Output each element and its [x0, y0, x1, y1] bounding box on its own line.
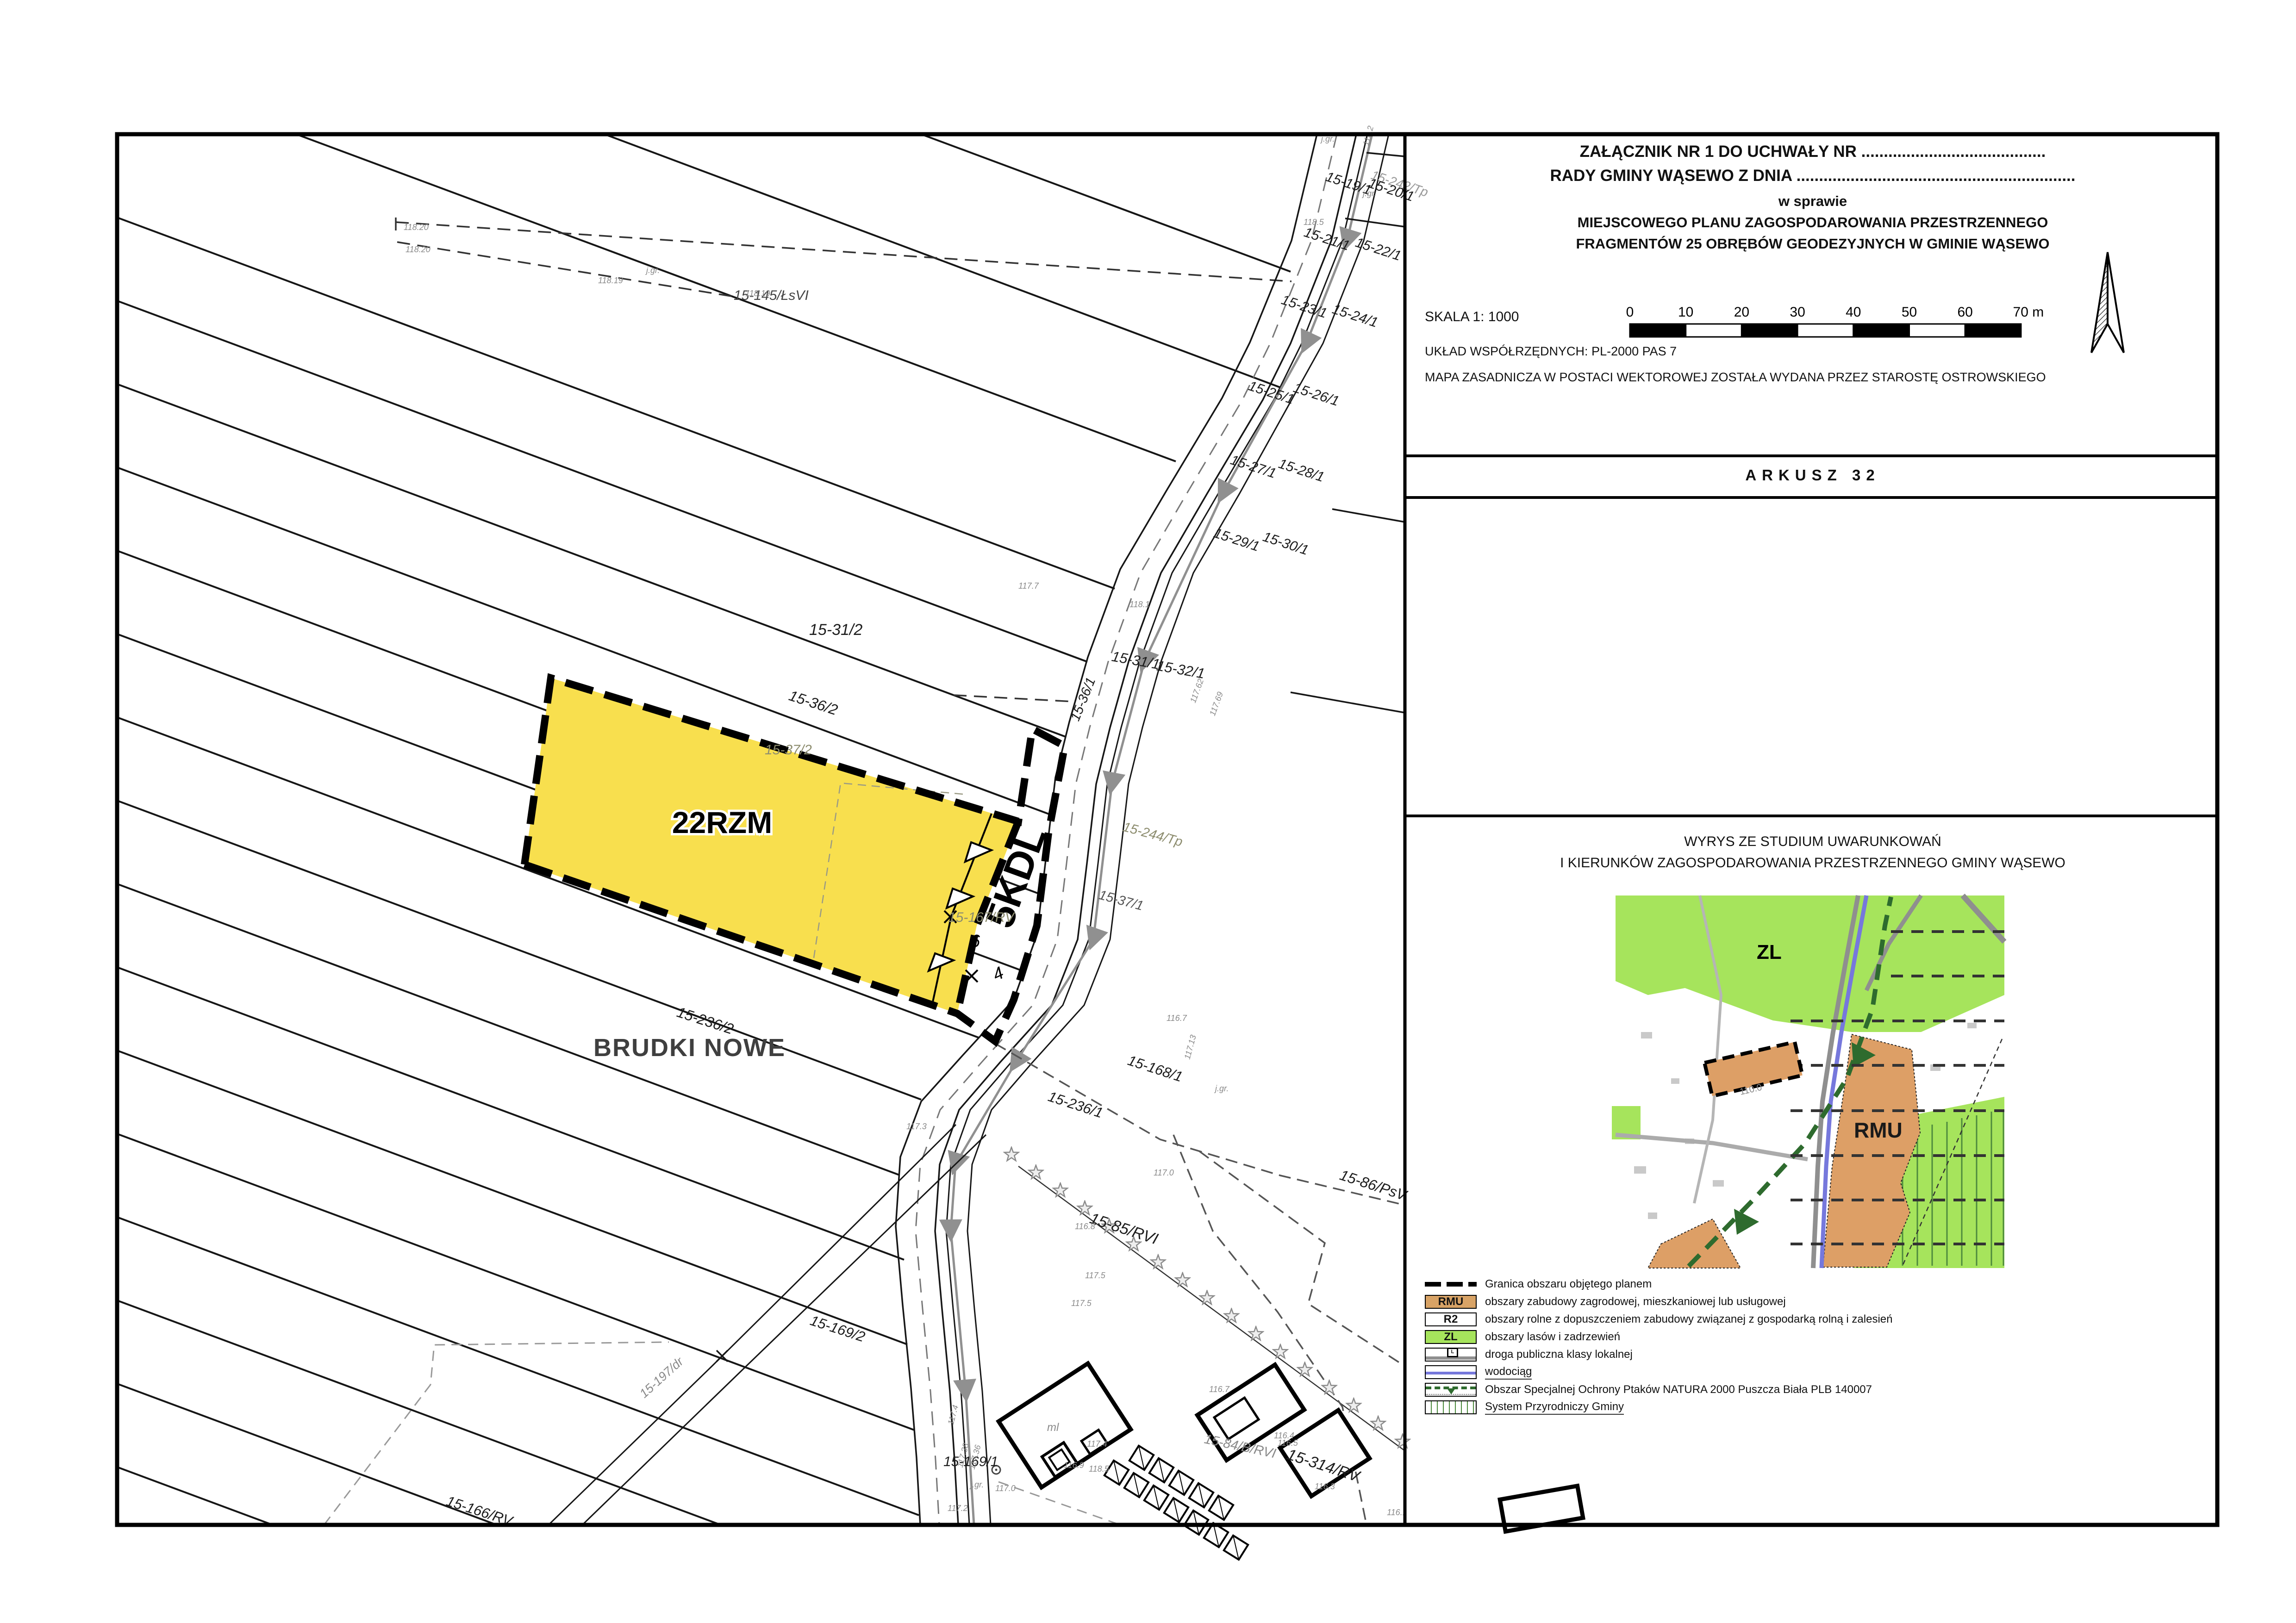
map-label: 15-30/1 [1261, 529, 1310, 558]
legend-row-wodociag: wodociąg [1425, 1364, 2193, 1380]
map-label: 15-167/RV [948, 910, 1016, 925]
map-label: 15-197/dr [637, 1354, 686, 1400]
legend-label: obszary zabudowy zagrodowej, mieszkaniow… [1485, 1295, 1786, 1308]
map-label: 15-244/Tp [1121, 820, 1184, 850]
outbuilding [1149, 1458, 1173, 1482]
map-label: 116.7 [1167, 1014, 1187, 1023]
legend-label: Granica obszaru objętego planem [1485, 1278, 1652, 1291]
legend-label: System Przyrodniczy Gminy [1485, 1400, 1624, 1415]
zone-22rzm [524, 678, 1065, 1041]
legend-row-rmu: RMU obszary zabudowy zagrodowej, mieszka… [1425, 1294, 2193, 1310]
natura2000-swatch [1425, 1383, 1477, 1397]
scale-bar: 010203040506070 m [1626, 305, 2044, 337]
map-label: 118.19 [745, 289, 770, 298]
map-label: 15-26/1 [1291, 380, 1341, 409]
map-label: 15-169/2 [808, 1312, 867, 1345]
outbuilding [1169, 1471, 1193, 1495]
road-swatch: L [1425, 1348, 1477, 1362]
map-label: 4 [990, 963, 1007, 985]
map-label: 117.5 [1071, 1299, 1092, 1308]
map-label: 15-37/2 [765, 742, 812, 758]
title-block: ZAŁĄCZNIK NR 1 DO UCHWAŁY NR ...........… [1407, 140, 2218, 255]
tree-symbol [1029, 1165, 1043, 1179]
map-label: j.gr. [969, 1480, 984, 1489]
legend-row-system: System Przyrodniczy Gminy [1425, 1399, 2193, 1415]
title-line-wsprawie: w sprawie [1407, 191, 2218, 212]
map-label: 15-168/1 [1126, 1052, 1185, 1085]
rmu-swatch: RMU [1425, 1295, 1477, 1309]
legend-row-natura: Obszar Specjalnej Ochrony Ptaków NATURA … [1425, 1382, 2193, 1398]
legend-row-droga: L droga publiczna klasy lokalnej [1425, 1347, 2193, 1362]
cadastral-map: 22RZM 5KDL BRUDKI NOWE 15-145/ŁsVI15-31/… [117, 125, 1583, 1560]
scale-text: SKALA 1: 1000 [1425, 309, 1519, 325]
scale-bar-label: 20 [1734, 305, 1749, 320]
title-line-zalacznik: ZAŁĄCZNIK NR 1 DO UCHWAŁY NR ...........… [1407, 140, 2218, 164]
map-label: 118.1 [1129, 600, 1150, 609]
map-label: 118.20 [406, 245, 430, 254]
map-label: 118.20 [404, 223, 429, 232]
map-label: 117.3 [906, 1122, 927, 1131]
map-label: 15-22/1 [1354, 235, 1403, 264]
map-label: 15-24/1 [1330, 301, 1380, 330]
map-label: 15-31/1 [1111, 648, 1161, 672]
map-label: 15-32/1 [1155, 657, 1206, 682]
road-class-icon: L [1447, 1348, 1458, 1357]
outbuilding [1184, 1511, 1208, 1535]
outbuilding [1189, 1483, 1213, 1507]
outbuilding [1164, 1498, 1188, 1522]
scale-bar-label: 0 [1626, 305, 1634, 320]
zone-label-22rzm: 22RZM [672, 805, 772, 839]
map-label: 117.2 [948, 1504, 968, 1513]
outbuilding [1129, 1446, 1154, 1470]
plan-boundary-symbol [1425, 1277, 1477, 1291]
town-label: BRUDKI NOWE [593, 1034, 786, 1062]
map-label: 6 [970, 932, 980, 951]
map-label: 15-85/RVI [1088, 1209, 1160, 1248]
map-label: 15-21/1 [1302, 224, 1352, 254]
map-label: 118.5 [1304, 218, 1324, 227]
tree-symbol [1151, 1255, 1165, 1269]
map-label: 15-236/1 [1046, 1088, 1105, 1121]
scale-bar-label: 50 [1902, 305, 1917, 320]
map-label: 116.9 [1064, 1461, 1084, 1470]
scale-bar-label: 30 [1790, 305, 1805, 320]
map-label: 15-236/2 [675, 1003, 736, 1037]
map-label: 116.5 [1278, 1438, 1298, 1448]
legend-row-r2: R2 obszary rolne z dopuszczeniem zabudow… [1425, 1312, 2193, 1327]
right-panel-graphics: 010203040506070 m [1612, 252, 2124, 1268]
sheet-number: ARKUSZ 32 [1407, 466, 2218, 484]
map-label: 118.5 [1089, 1464, 1110, 1474]
legend-label: Obszar Specjalnej Ochrony Ptaków NATURA … [1485, 1383, 1872, 1396]
legend-row-zl: ZL obszary lasów i zadrzewień [1425, 1329, 2193, 1345]
inset-rmu-label: RMU [1854, 1118, 1903, 1142]
scale-bar-label: 40 [1846, 305, 1861, 320]
map-label: 116.3 [1315, 1482, 1335, 1491]
legend-row-granica: Granica obszaru objętego planem [1425, 1276, 2193, 1292]
map-label: 117.4 [946, 1404, 961, 1426]
planning-map-sheet: { "title_block": { "line1": "ZAŁĄCZNIK N… [0, 0, 2296, 1623]
studium-heading-line1: WYRYS ZE STUDIUM UWARUNKOWAŃ [1407, 831, 2218, 852]
map-label: 117.0 [1154, 1168, 1174, 1177]
outbuilding [1224, 1536, 1248, 1560]
basemap-note: MAPA ZASADNICZA W POSTACI WEKTOROWEJ ZOS… [1425, 369, 2184, 386]
r2-swatch: R2 [1425, 1312, 1477, 1326]
map-label: 15-29/1 [1212, 525, 1261, 554]
scale-bar-label: 60 [1958, 305, 1973, 320]
scale-bar-label: 10 [1678, 305, 1693, 320]
map-label: 15-36/1 [1068, 675, 1099, 723]
map-label: 117.13 [1183, 1034, 1198, 1060]
scale-bar-label: 70 m [2013, 305, 2044, 320]
natural-system-swatch [1425, 1400, 1477, 1414]
map-label: 117.5 [1085, 1271, 1106, 1280]
map-label: 15-31/2 [809, 621, 862, 639]
map-label: 117.62 [1188, 678, 1205, 704]
zl-swatch: ZL [1425, 1330, 1477, 1344]
north-arrow [2091, 252, 2124, 353]
map-label: j.gr. [1361, 189, 1376, 198]
studium-heading: WYRYS ZE STUDIUM UWARUNKOWAŃ I KIERUNKÓW… [1407, 831, 2218, 874]
outbuilding [1209, 1496, 1233, 1520]
map-label: 117.69 [1208, 690, 1225, 717]
inset-zl-label: ZL [1757, 941, 1782, 964]
map-label: 15-36/2 [787, 687, 840, 718]
map-label: j.gr. [1214, 1084, 1229, 1093]
outbuilding [1144, 1486, 1168, 1510]
tree-symbol [1078, 1201, 1092, 1214]
map-label: 118.19 [598, 276, 623, 285]
map-label: 116.7 [1209, 1385, 1230, 1394]
map-label: 15-27/1 [1229, 452, 1278, 481]
map-label: 15-37/1 [1097, 888, 1145, 914]
map-label: 117.4 [1087, 1439, 1107, 1449]
map-label: 117.7 [1018, 581, 1039, 591]
tree-symbol [1004, 1147, 1018, 1161]
legend-label: obszary rolne z dopuszczeniem zabudowy z… [1485, 1313, 1892, 1326]
studium-inset-map: 110.0 ZL RMU [1612, 895, 2004, 1268]
map-label: ml [1047, 1421, 1059, 1434]
tree-symbol [1053, 1183, 1067, 1197]
map-label: j.gr. [645, 266, 660, 275]
farm-road [324, 1125, 1120, 1525]
outbuilding [1124, 1473, 1148, 1497]
title-line-fragmenty: FRAGMENTÓW 25 OBRĘBÓW GEODEZYJNYCH W GMI… [1407, 233, 2218, 255]
legend-label: wodociąg [1485, 1365, 1532, 1380]
title-line-plan: MIEJSCOWEGO PLANU ZAGOSPODAROWANIA PRZES… [1407, 212, 2218, 233]
map-label: 116.8 [1075, 1222, 1095, 1231]
map-label: 15-28/1 [1277, 456, 1326, 485]
title-line-rada: RADY GMINY WĄSEWO Z DNIA ...............… [1407, 164, 2218, 188]
legend-label: droga publiczna klasy lokalnej [1485, 1348, 1633, 1361]
coordinate-system-text: UKŁAD WSPÓŁRZĘDNYCH: PL-2000 PAS 7 [1425, 344, 1677, 359]
studium-heading-line2: I KIERUNKÓW ZAGOSPODAROWANIA PRZESTRZENN… [1407, 852, 2218, 874]
map-label: 15-23/1 [1279, 292, 1329, 321]
legend: Granica obszaru objętego planem RMU obsz… [1425, 1276, 2193, 1417]
map-label: 117.0 [995, 1484, 1016, 1493]
legend-label: obszary lasów i zadrzewień [1485, 1331, 1620, 1343]
water-main-swatch [1425, 1365, 1477, 1379]
